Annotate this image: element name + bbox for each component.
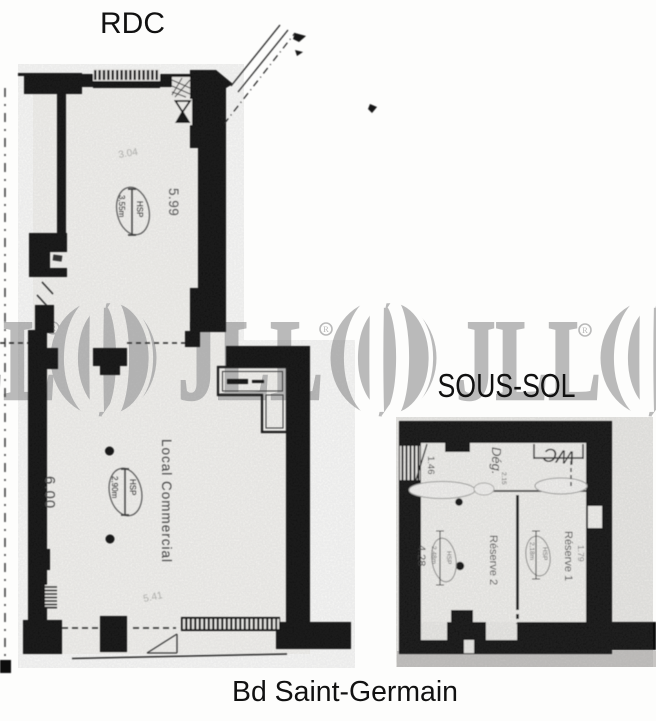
svg-text:R: R bbox=[323, 324, 329, 334]
svg-text:SOUS-SOL: SOUS-SOL bbox=[438, 367, 576, 404]
svg-text:Bd Saint-Germain: Bd Saint-Germain bbox=[232, 676, 458, 708]
svg-text:RDC: RDC bbox=[100, 7, 165, 40]
svg-text:JLL: JLL bbox=[456, 297, 601, 424]
svg-text:R: R bbox=[582, 325, 588, 335]
